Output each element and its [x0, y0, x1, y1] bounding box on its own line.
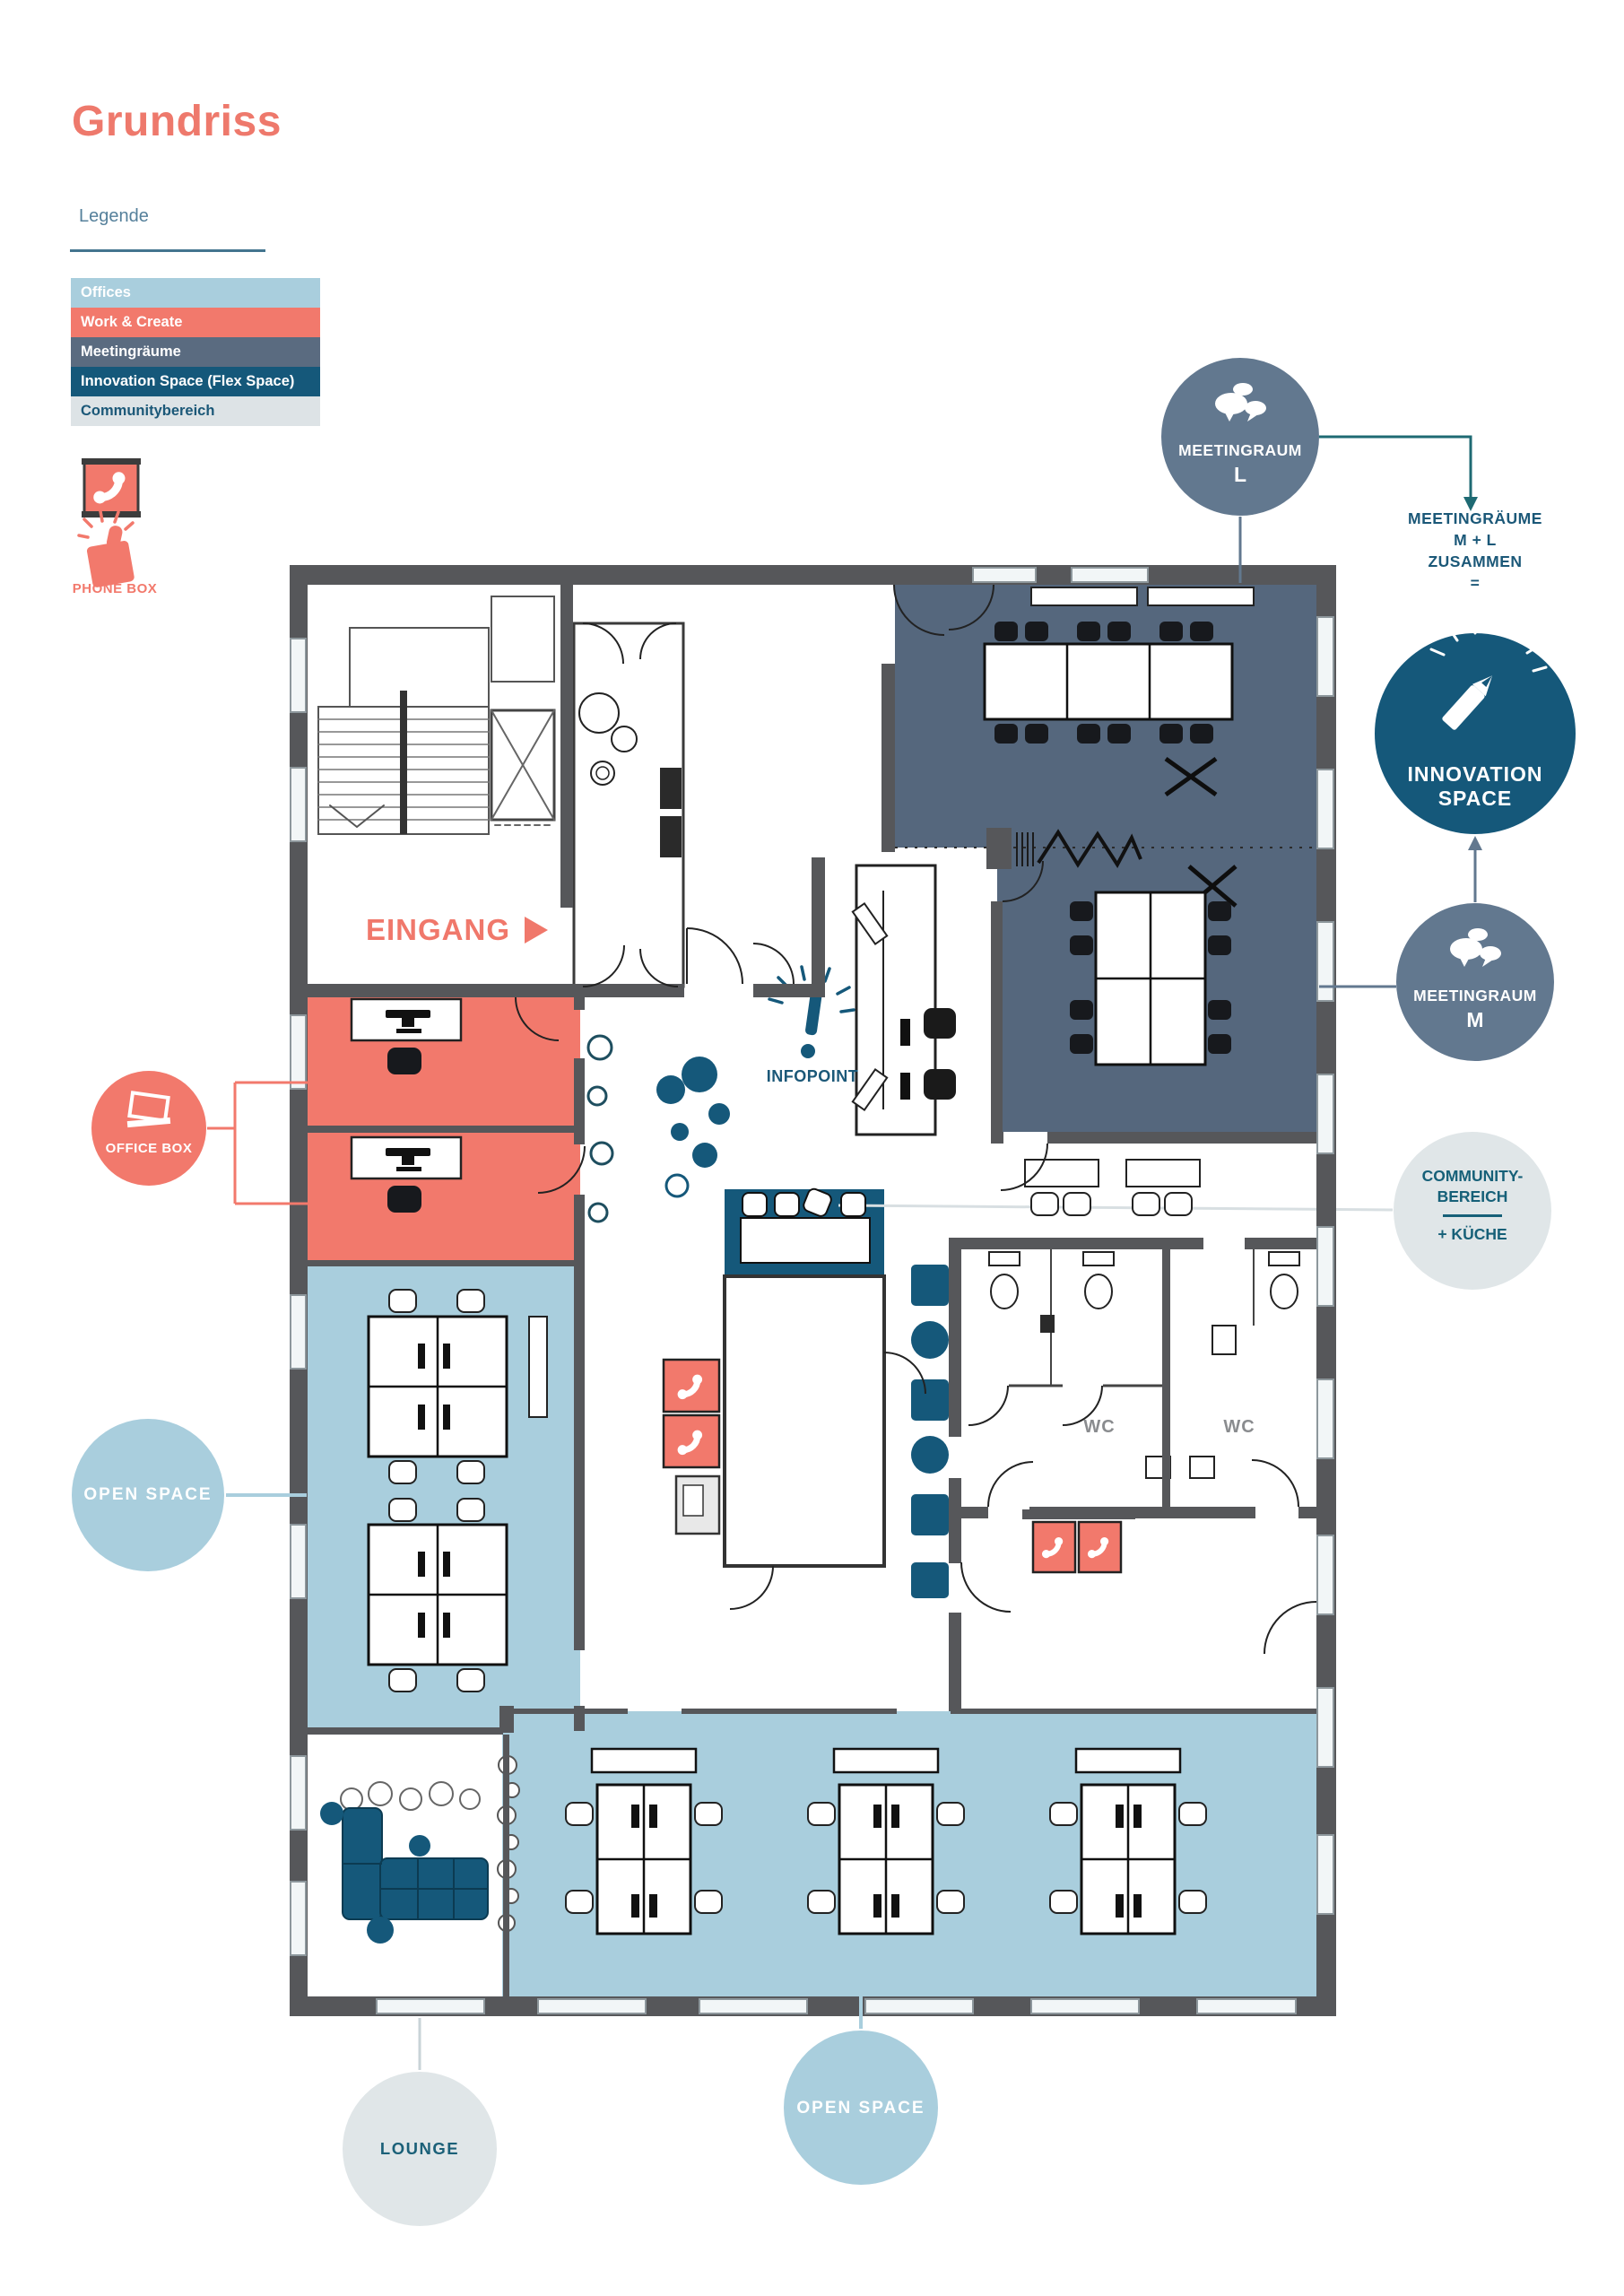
task-chair	[924, 1008, 956, 1039]
office-box-label: OFFICE BOX	[59, 1141, 239, 1156]
monitor	[900, 1019, 910, 1046]
kitchen-table	[741, 1218, 870, 1263]
innovation-space-label: INNOVATION SPACE	[1385, 762, 1565, 811]
kitchen-furniture	[741, 1187, 870, 1263]
island-room	[725, 1276, 884, 1566]
sink-icon	[1190, 1457, 1214, 1478]
meetingraum-l-label: MEETINGRAUM L	[1151, 441, 1330, 487]
stool	[743, 1193, 767, 1216]
phone-box-legend-icon	[82, 458, 141, 517]
sink-icon	[1040, 1315, 1055, 1333]
stair-rail	[400, 691, 407, 834]
meetingraum-m-label: MEETINGRAUM M	[1385, 987, 1565, 1032]
meetingraum-m-circle	[1396, 903, 1554, 1061]
entrance-arrow-icon	[525, 917, 548, 944]
reception-room	[574, 623, 683, 987]
stool	[841, 1193, 865, 1216]
lounge-label: LOUNGE	[330, 2139, 509, 2159]
pouf	[320, 1802, 343, 1825]
community-label-divider	[1443, 1214, 1502, 1217]
infopoint-label: INFOPOINT	[743, 1067, 882, 1086]
meeting-l-to-combo-line	[1319, 437, 1471, 497]
plant-icon	[612, 726, 637, 752]
pouf	[409, 1835, 430, 1857]
elevator	[491, 710, 554, 825]
whiteboard	[1148, 587, 1254, 605]
stool	[775, 1193, 799, 1216]
plant-icon	[591, 761, 614, 785]
hand-raised-icon	[79, 511, 135, 588]
arrow-up-icon	[1468, 836, 1482, 850]
phone-box-label: PHONE BOX	[61, 581, 169, 596]
wc-label-right: WC	[1212, 1417, 1266, 1438]
wc-label-left: WC	[1073, 1417, 1126, 1438]
task-chair	[924, 1069, 956, 1100]
toilet-icon	[989, 1252, 1020, 1309]
urinal-icon	[1212, 1326, 1236, 1354]
open-space-left-label: OPEN SPACE	[58, 1485, 238, 1505]
grundriss-page: Grundriss Legende Offices Work & Create …	[0, 0, 1624, 2296]
whiteboard	[1031, 587, 1137, 605]
floor-plan	[0, 0, 1624, 2296]
community-label: COMMUNITY- BEREICH + KÜCHE	[1383, 1166, 1562, 1245]
office-box-circle	[91, 1071, 206, 1186]
plant-icon	[579, 693, 619, 733]
chair-icon	[387, 1048, 421, 1074]
entrance-label: EINGANG	[366, 913, 548, 947]
toilet-icon	[1269, 1252, 1299, 1309]
printer	[676, 1476, 719, 1534]
meeting-combo-label: MEETINGRÄUME M + L ZUSAMMEN =	[1385, 508, 1565, 594]
open-space-bottom-label: OPEN SPACE	[771, 2099, 951, 2118]
toilet-icon	[1083, 1252, 1114, 1309]
pouf	[367, 1917, 394, 1944]
conference-table	[985, 644, 1232, 719]
stairwell	[318, 596, 554, 834]
chair-icon	[387, 1186, 421, 1213]
monitor	[900, 1073, 910, 1100]
shelf	[529, 1317, 547, 1417]
meetingraum-l-circle	[1161, 358, 1319, 516]
